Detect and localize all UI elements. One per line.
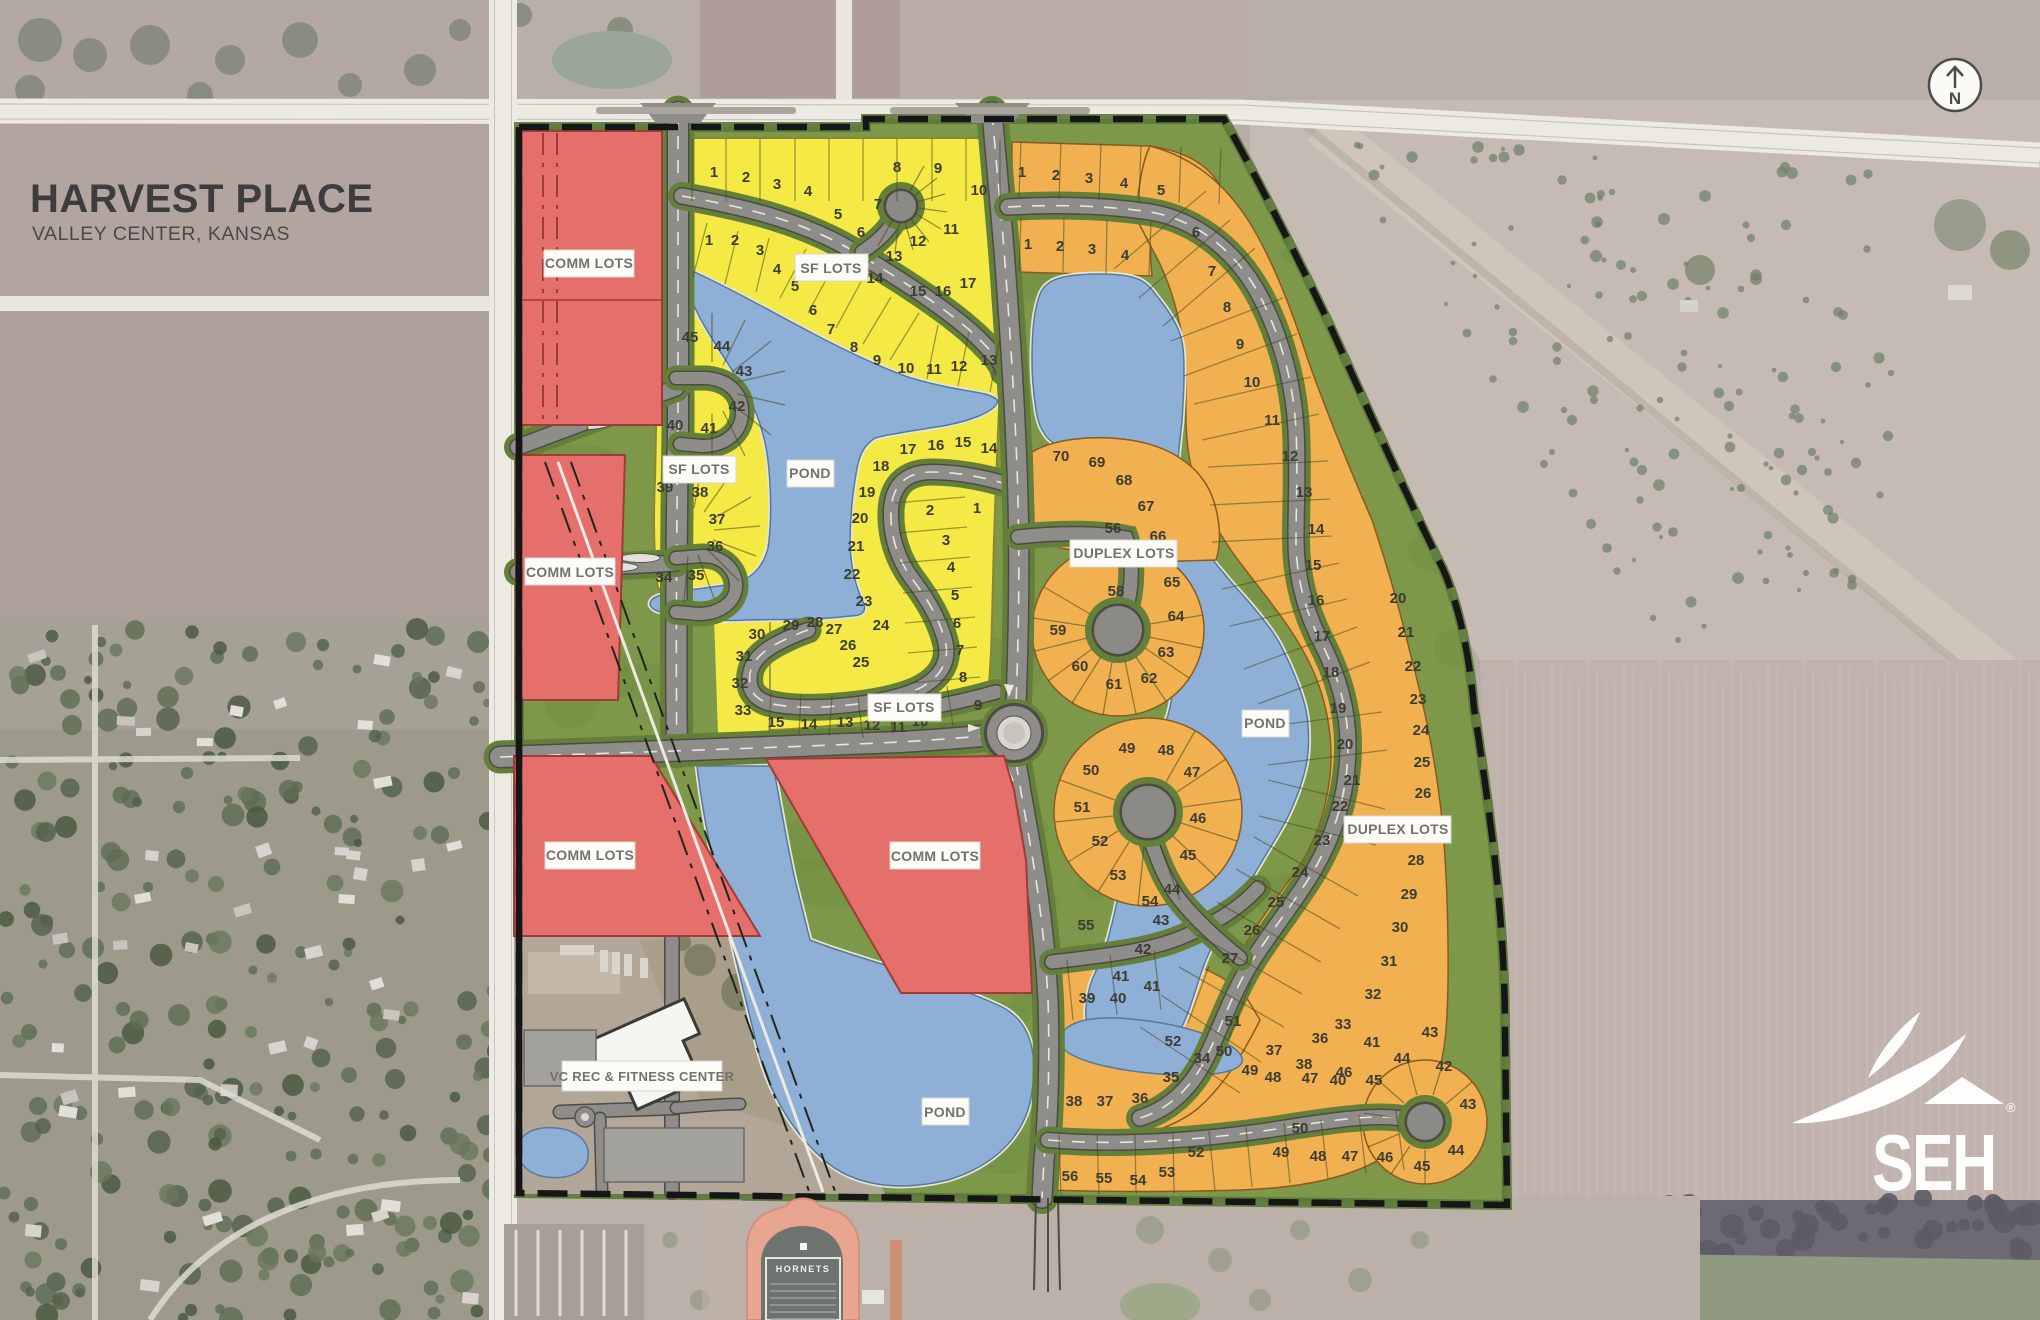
svg-text:8: 8: [850, 339, 858, 356]
svg-text:7: 7: [827, 321, 835, 338]
svg-text:3: 3: [1085, 170, 1093, 187]
svg-text:SF LOTS: SF LOTS: [873, 699, 934, 715]
svg-text:4: 4: [1120, 175, 1129, 192]
svg-text:14: 14: [867, 270, 884, 287]
svg-text:7: 7: [874, 196, 882, 213]
svg-text:6: 6: [857, 224, 865, 241]
svg-text:15: 15: [955, 434, 972, 451]
svg-text:6: 6: [809, 302, 817, 319]
svg-text:4: 4: [773, 261, 782, 278]
svg-text:34: 34: [1194, 1050, 1211, 1067]
svg-text:46: 46: [1190, 810, 1207, 827]
svg-text:43: 43: [736, 363, 753, 380]
svg-text:HARVEST PLACE: HARVEST PLACE: [30, 177, 374, 221]
svg-text:2: 2: [1056, 238, 1064, 255]
svg-text:COMM LOTS: COMM LOTS: [891, 848, 979, 864]
svg-text:45: 45: [1414, 1158, 1431, 1175]
svg-text:43: 43: [1153, 912, 1170, 929]
svg-text:25: 25: [1268, 894, 1285, 911]
svg-text:9: 9: [873, 352, 881, 369]
svg-text:41: 41: [701, 420, 718, 437]
svg-text:37: 37: [1097, 1093, 1114, 1110]
svg-text:50: 50: [1292, 1120, 1309, 1137]
svg-text:44: 44: [1164, 881, 1181, 898]
svg-text:10: 10: [898, 360, 915, 377]
svg-text:14: 14: [1308, 521, 1325, 538]
svg-text:35: 35: [1163, 1069, 1180, 1086]
svg-text:4: 4: [1121, 247, 1130, 264]
svg-text:60: 60: [1072, 658, 1089, 675]
svg-text:29: 29: [1401, 886, 1418, 903]
svg-text:36: 36: [707, 538, 724, 555]
svg-text:23: 23: [1410, 691, 1427, 708]
svg-text:42: 42: [1436, 1058, 1453, 1075]
svg-text:7: 7: [1208, 263, 1216, 280]
svg-text:37: 37: [1266, 1042, 1283, 1059]
svg-text:50: 50: [1216, 1043, 1233, 1060]
svg-text:59: 59: [1050, 622, 1067, 639]
svg-text:32: 32: [732, 675, 749, 692]
svg-text:HORNETS: HORNETS: [776, 1264, 831, 1274]
svg-text:DUPLEX LOTS: DUPLEX LOTS: [1073, 545, 1174, 561]
svg-text:8: 8: [893, 159, 901, 176]
svg-text:24: 24: [1413, 722, 1430, 739]
svg-text:24: 24: [873, 617, 890, 634]
svg-text:44: 44: [714, 338, 731, 355]
svg-text:49: 49: [1273, 1144, 1290, 1161]
svg-text:21: 21: [848, 538, 865, 555]
svg-text:38: 38: [1066, 1093, 1083, 1110]
svg-text:41: 41: [1144, 978, 1161, 995]
svg-text:9: 9: [1236, 336, 1244, 353]
svg-text:70: 70: [1053, 448, 1070, 465]
svg-text:22: 22: [1405, 658, 1422, 675]
svg-text:42: 42: [729, 398, 746, 415]
svg-text:10: 10: [1244, 374, 1261, 391]
svg-text:48: 48: [1310, 1148, 1327, 1165]
svg-text:29: 29: [783, 617, 800, 634]
svg-text:9: 9: [934, 160, 942, 177]
svg-text:36: 36: [1312, 1030, 1329, 1047]
svg-text:49: 49: [1119, 740, 1136, 757]
svg-text:56: 56: [1062, 1168, 1079, 1185]
svg-text:2: 2: [926, 502, 934, 519]
svg-text:14: 14: [981, 440, 998, 457]
svg-text:COMM LOTS: COMM LOTS: [545, 255, 633, 271]
svg-text:12: 12: [910, 233, 927, 250]
svg-text:55: 55: [1078, 917, 1095, 934]
svg-text:34: 34: [656, 569, 673, 586]
svg-text:32: 32: [1365, 986, 1382, 1003]
svg-text:54: 54: [1130, 1172, 1147, 1189]
svg-text:2: 2: [1052, 167, 1060, 184]
svg-text:3: 3: [773, 176, 781, 193]
svg-text:2: 2: [731, 232, 739, 249]
svg-text:VALLEY CENTER, KANSAS: VALLEY CENTER, KANSAS: [32, 223, 290, 245]
svg-text:16: 16: [928, 437, 945, 454]
svg-text:62: 62: [1141, 670, 1158, 687]
svg-text:46: 46: [1377, 1149, 1394, 1166]
svg-text:47: 47: [1184, 764, 1201, 781]
svg-text:16: 16: [1308, 592, 1325, 609]
svg-text:52: 52: [1165, 1033, 1182, 1050]
svg-text:17: 17: [900, 441, 917, 458]
svg-text:68: 68: [1116, 472, 1133, 489]
svg-text:65: 65: [1164, 574, 1181, 591]
svg-text:44: 44: [1448, 1142, 1465, 1159]
svg-text:51: 51: [1225, 1013, 1242, 1030]
svg-text:40: 40: [1330, 1072, 1347, 1089]
svg-text:21: 21: [1398, 624, 1415, 641]
svg-text:26: 26: [1415, 785, 1432, 802]
svg-text:1: 1: [973, 500, 981, 517]
svg-text:COMM LOTS: COMM LOTS: [546, 847, 634, 863]
svg-text:40: 40: [1110, 990, 1127, 1007]
svg-text:31: 31: [1381, 953, 1398, 970]
svg-text:35: 35: [688, 567, 705, 584]
svg-text:36: 36: [1132, 1090, 1149, 1107]
svg-text:1: 1: [1024, 236, 1032, 253]
svg-text:11: 11: [1264, 412, 1280, 429]
svg-text:30: 30: [749, 626, 766, 643]
svg-text:21: 21: [1344, 772, 1361, 789]
svg-text:26: 26: [1244, 922, 1261, 939]
svg-text:2: 2: [742, 169, 750, 186]
svg-text:24: 24: [1292, 864, 1309, 881]
svg-text:45: 45: [682, 329, 699, 346]
svg-text:15: 15: [910, 283, 927, 300]
svg-text:44: 44: [1394, 1050, 1411, 1067]
svg-text:26: 26: [840, 637, 857, 654]
svg-text:20: 20: [1337, 736, 1354, 753]
svg-text:11: 11: [943, 221, 959, 238]
svg-text:15: 15: [768, 714, 785, 731]
svg-text:3: 3: [1088, 241, 1096, 258]
svg-text:31: 31: [736, 648, 753, 665]
svg-text:6: 6: [1192, 224, 1200, 241]
svg-text:27: 27: [826, 621, 843, 638]
svg-text:52: 52: [1188, 1144, 1205, 1161]
svg-text:33: 33: [1335, 1016, 1352, 1033]
svg-text:13: 13: [1296, 484, 1313, 501]
svg-text:19: 19: [1330, 700, 1347, 717]
svg-text:38: 38: [1296, 1056, 1313, 1073]
svg-text:3: 3: [942, 532, 950, 549]
svg-text:55: 55: [1096, 1170, 1113, 1187]
svg-text:10: 10: [971, 182, 988, 199]
svg-text:18: 18: [873, 458, 890, 475]
svg-text:16: 16: [935, 283, 952, 300]
svg-text:28: 28: [1408, 852, 1425, 869]
svg-text:56: 56: [1105, 520, 1122, 537]
svg-text:4: 4: [804, 183, 813, 200]
svg-text:5: 5: [834, 206, 842, 223]
svg-text:52: 52: [1092, 833, 1109, 850]
svg-text:25: 25: [1414, 754, 1431, 771]
svg-text:POND: POND: [789, 465, 831, 481]
svg-text:58: 58: [1108, 583, 1125, 600]
svg-text:69: 69: [1089, 454, 1106, 471]
svg-text:VC REC & FITNESS CENTER: VC REC & FITNESS CENTER: [550, 1069, 735, 1084]
svg-text:39: 39: [1079, 990, 1096, 1007]
svg-text:DUPLEX LOTS: DUPLEX LOTS: [1347, 821, 1448, 837]
svg-text:19: 19: [859, 484, 876, 501]
svg-text:13: 13: [886, 248, 903, 265]
svg-text:20: 20: [1390, 590, 1407, 607]
svg-text:53: 53: [1159, 1164, 1176, 1181]
svg-text:17: 17: [960, 275, 977, 292]
svg-text:8: 8: [959, 669, 967, 686]
svg-text:®: ®: [2006, 1100, 2016, 1115]
svg-text:13: 13: [837, 714, 854, 731]
svg-text:50: 50: [1083, 762, 1100, 779]
svg-text:48: 48: [1158, 742, 1175, 759]
svg-text:17: 17: [1314, 628, 1331, 645]
svg-text:1: 1: [710, 164, 718, 181]
svg-text:30: 30: [1392, 919, 1409, 936]
svg-text:42: 42: [1135, 941, 1152, 958]
svg-text:37: 37: [709, 511, 726, 528]
svg-text:7: 7: [956, 642, 964, 659]
svg-text:1: 1: [1018, 164, 1026, 181]
svg-text:23: 23: [856, 593, 873, 610]
svg-text:POND: POND: [924, 1104, 966, 1120]
svg-text:23: 23: [1314, 832, 1331, 849]
svg-text:12: 12: [1282, 448, 1299, 465]
svg-text:4: 4: [947, 559, 956, 576]
svg-text:43: 43: [1460, 1096, 1477, 1113]
svg-text:N: N: [1949, 89, 1961, 108]
svg-text:11: 11: [926, 361, 942, 378]
svg-text:54: 54: [1142, 893, 1159, 910]
svg-text:41: 41: [1113, 968, 1130, 985]
svg-text:38: 38: [692, 484, 709, 501]
svg-text:67: 67: [1138, 498, 1155, 515]
svg-text:5: 5: [951, 587, 959, 604]
svg-text:33: 33: [735, 702, 752, 719]
svg-text:45: 45: [1366, 1072, 1383, 1089]
svg-text:SF LOTS: SF LOTS: [668, 461, 729, 477]
svg-text:11: 11: [890, 719, 906, 736]
svg-text:22: 22: [1332, 798, 1349, 815]
svg-text:POND: POND: [1244, 715, 1286, 731]
svg-text:9: 9: [974, 697, 982, 714]
svg-text:5: 5: [1157, 182, 1165, 199]
svg-text:51: 51: [1074, 799, 1091, 816]
svg-text:COMM LOTS: COMM LOTS: [526, 564, 614, 580]
svg-text:47: 47: [1342, 1148, 1359, 1165]
svg-text:45: 45: [1180, 847, 1197, 864]
svg-text:13: 13: [981, 352, 998, 369]
svg-text:61: 61: [1106, 676, 1123, 693]
svg-text:25: 25: [853, 654, 870, 671]
svg-text:48: 48: [1265, 1069, 1282, 1086]
svg-text:8: 8: [1223, 299, 1231, 316]
svg-text:20: 20: [852, 510, 869, 527]
svg-text:SEH: SEH: [1872, 1119, 1996, 1208]
svg-text:18: 18: [1323, 664, 1340, 681]
svg-text:64: 64: [1168, 608, 1185, 625]
svg-text:41: 41: [1364, 1034, 1381, 1051]
svg-text:1: 1: [705, 232, 713, 249]
svg-text:49: 49: [1242, 1062, 1259, 1079]
svg-text:28: 28: [807, 614, 824, 631]
svg-text:12: 12: [951, 358, 968, 375]
svg-text:6: 6: [953, 615, 961, 632]
svg-text:40: 40: [667, 417, 684, 434]
svg-text:SF LOTS: SF LOTS: [800, 260, 861, 276]
svg-text:63: 63: [1158, 644, 1175, 661]
svg-text:22: 22: [844, 566, 861, 583]
svg-text:14: 14: [801, 716, 818, 733]
svg-text:27: 27: [1222, 950, 1239, 967]
svg-text:53: 53: [1110, 867, 1127, 884]
svg-text:43: 43: [1422, 1024, 1439, 1041]
svg-text:3: 3: [756, 242, 764, 259]
svg-text:15: 15: [1305, 557, 1322, 574]
